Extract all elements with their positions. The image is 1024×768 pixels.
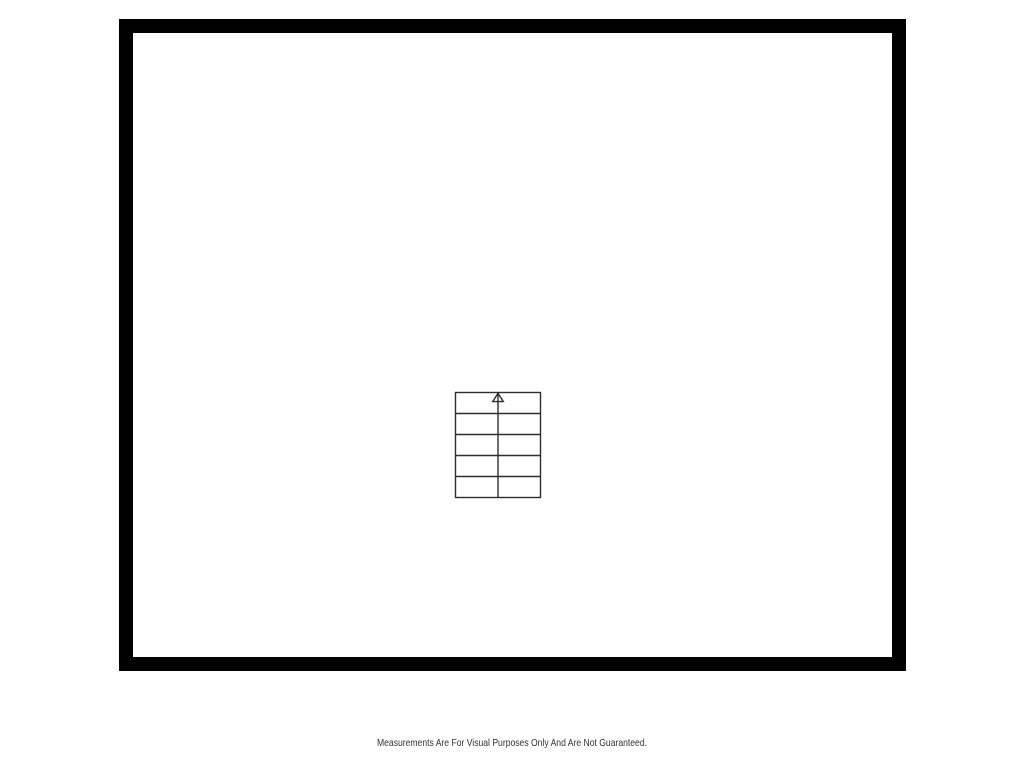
svg-text:Measurements Are For Visual Pu: Measurements Are For Visual Purposes Onl…	[377, 738, 647, 749]
